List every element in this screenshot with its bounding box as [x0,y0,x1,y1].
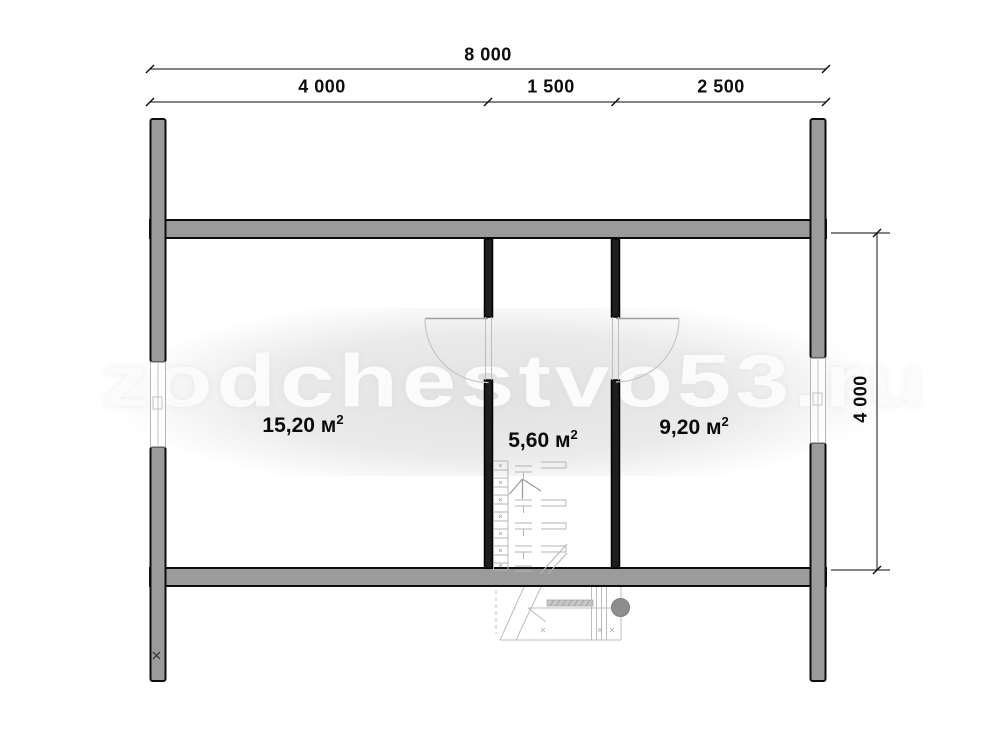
partition-1-upper [485,239,493,317]
porch-post-lines [592,587,607,640]
room-area-value: 5,60 м [508,429,570,452]
dimension-tick-marks [146,65,881,574]
bottom-wall [150,568,826,586]
right-door-swing-arc [616,319,679,382]
dimension-lines [146,65,890,574]
stair-rail-cross-markers [499,464,502,567]
left-wall-lower [151,447,166,681]
porch-column-circle [612,599,630,617]
porch-outline [500,587,621,640]
porch-tiny-markers [541,628,614,632]
staircase [494,461,568,574]
room-area-sup: 2 [571,427,578,442]
room-area-label-middle: 5,60 м2 [508,427,577,453]
dimension-label-total-width: 8 000 [464,45,512,66]
dimension-label-segment-middle: 1 500 [527,77,575,98]
door-opening-jambs [486,317,619,380]
right-wall-lower [811,443,826,681]
room-area-label-left: 15,20 м2 [262,412,343,438]
stair-side-rail [494,461,509,570]
left-door-swing-arc [425,319,489,383]
room-area-value: 15,20 м [262,414,336,437]
stair-middle-treads [515,466,532,571]
partition-1-lower [485,380,493,568]
interior-partitions [485,239,620,568]
dimension-label-segment-right: 2 500 [697,77,745,98]
left-wall-upper [151,119,166,362]
room-area-value: 9,20 м [659,416,721,439]
stair-rail-treads [494,461,509,570]
porch-landing-line [528,608,613,622]
floor-plan-canvas: zodchestvo53.ru [0,0,1000,750]
room-area-label-right: 9,20 м2 [659,414,728,440]
stair-right-treads [541,462,566,552]
stair-up-arrow [510,479,542,499]
partition-2-lower [612,380,620,568]
room-area-sup: 2 [722,414,729,429]
doors [425,317,679,383]
entrance-porch [496,587,630,640]
top-wall [150,220,826,238]
dimension-label-height: 4 000 [851,375,872,423]
right-wall-upper [811,119,826,358]
partition-2-upper [612,239,620,317]
room-area-sup: 2 [336,412,343,427]
dimension-label-segment-left: 4 000 [298,77,346,98]
